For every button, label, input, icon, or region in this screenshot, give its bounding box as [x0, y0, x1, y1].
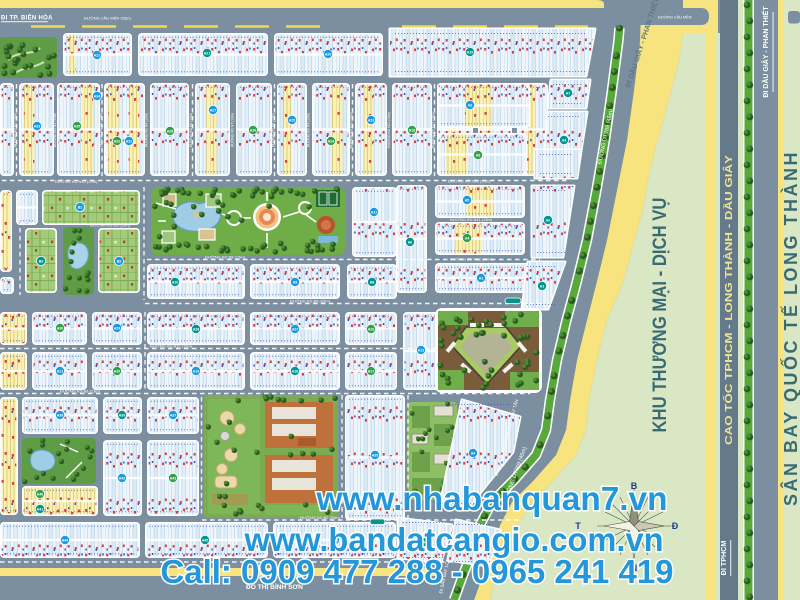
svg-text:A34: A34 [94, 94, 101, 98]
svg-text:A20: A20 [114, 369, 121, 373]
svg-text:B3: B3 [39, 259, 44, 263]
svg-text:A32: A32 [114, 139, 121, 143]
svg-text:A40: A40 [37, 492, 44, 496]
svg-text:A3: A3 [562, 138, 567, 142]
svg-text:ĐƯỜNG KD N10 (13m): ĐƯỜNG KD N10 (13m) [448, 179, 491, 184]
svg-text:ĐƯỜNG KD N8 (13m): ĐƯỜNG KD N8 (13m) [271, 113, 276, 147]
svg-text:A41: A41 [37, 507, 44, 511]
svg-text:A17: A17 [368, 369, 375, 373]
svg-text:A28: A28 [193, 327, 200, 331]
svg-text:ĐƯỜNG KD N12 (13m): ĐƯỜNG KD N12 (13m) [450, 257, 493, 262]
svg-text:A45: A45 [202, 538, 209, 542]
svg-text:ĐƯỜNG KD B8 (13m): ĐƯỜNG KD B8 (13m) [205, 255, 246, 260]
svg-text:A38: A38 [57, 413, 64, 417]
svg-text:A29: A29 [114, 326, 121, 330]
svg-text:A28: A28 [167, 129, 174, 133]
svg-text:ĐƯỜNG CẦU MÊN 32(m): ĐƯỜNG CẦU MÊN 32(m) [84, 16, 132, 21]
svg-text:ĐƯỜNG KD N12 (13m): ĐƯỜNG KD N12 (13m) [55, 179, 98, 184]
svg-text:ĐƯỜNG KD B3 (13m): ĐƯỜNG KD B3 (13m) [90, 223, 131, 228]
svg-text:A19: A19 [467, 50, 474, 54]
svg-text:A9: A9 [293, 280, 298, 284]
svg-text:A19: A19 [193, 369, 200, 373]
svg-text:A35: A35 [372, 453, 379, 457]
svg-text:Call: 0909 477 288 - 0965 241: Call: 0909 477 288 - 0965 241 419 [161, 553, 674, 590]
svg-text:A43: A43 [170, 476, 177, 480]
svg-text:ĐƯỜNG KD N9 (13m): ĐƯỜNG KD N9 (13m) [306, 113, 311, 147]
svg-text:ĐƯỜNG KD N2 (13m): ĐƯỜNG KD N2 (13m) [13, 113, 18, 147]
svg-text:A25: A25 [289, 118, 296, 122]
svg-text:A39: A39 [119, 413, 126, 417]
svg-text:Đ: Đ [672, 521, 679, 531]
svg-text:A27: A27 [292, 327, 299, 331]
svg-text:A26: A26 [368, 327, 375, 331]
svg-text:A18: A18 [292, 369, 299, 373]
svg-text:ĐƯỜNG KD N11 (13m): ĐƯỜNG KD N11 (13m) [450, 217, 493, 222]
svg-text:A1: A1 [479, 276, 484, 280]
svg-text:A8: A8 [370, 280, 375, 284]
svg-text:CAO TỐC TPHCM - LONG THÀNH - D: CAO TỐC TPHCM - LONG THÀNH - DẦU GIÂY [721, 155, 735, 445]
svg-text:ĐI TPHCM: ĐI TPHCM [719, 541, 728, 576]
svg-text:A4: A4 [465, 236, 470, 240]
svg-text:A21: A21 [204, 51, 211, 55]
svg-text:ĐƯỜNG KD B6 (13m): ĐƯỜNG KD B6 (13m) [60, 389, 101, 394]
svg-text:A2: A2 [546, 218, 551, 222]
svg-text:A27: A27 [210, 108, 217, 112]
svg-text:ĐƯỜNG KD B9 (20m): ĐƯỜNG KD B9 (20m) [290, 299, 331, 304]
svg-text:B1: B1 [78, 205, 83, 209]
svg-text:A22: A22 [94, 53, 101, 57]
svg-text:A42: A42 [119, 476, 126, 480]
svg-text:A44: A44 [62, 538, 69, 542]
svg-text:A31: A31 [126, 139, 133, 143]
svg-text:A30: A30 [57, 326, 64, 330]
svg-text:A26: A26 [250, 128, 257, 132]
svg-text:ĐƯỜNG CẦU MÊN: ĐƯỜNG CẦU MÊN [658, 15, 692, 20]
svg-text:ĐƯỜNG KD N7 (13m): ĐƯỜNG KD N7 (13m) [230, 113, 235, 147]
svg-text:ĐƯỜNG KD N5 (13m): ĐƯỜNG KD N5 (13m) [144, 113, 149, 147]
svg-text:A1: A1 [540, 284, 545, 288]
svg-text:B2: B2 [117, 259, 122, 263]
svg-text:ĐƯỜNG KD N11 (13m): ĐƯỜNG KD N11 (13m) [386, 112, 391, 148]
svg-text:A8: A8 [476, 153, 481, 157]
svg-text:A33: A33 [34, 124, 41, 128]
svg-text:A6: A6 [408, 240, 413, 244]
svg-text:A4: A4 [471, 451, 476, 455]
svg-text:A13: A13 [418, 348, 425, 352]
svg-text:ĐI TP. BIÊN HÒA: ĐI TP. BIÊN HÒA [1, 14, 53, 22]
svg-text:A10: A10 [172, 280, 179, 284]
svg-text:A18: A18 [409, 128, 416, 132]
svg-text:ĐƯỜNG KD N6 (13m): ĐƯỜNG KD N6 (13m) [188, 113, 193, 147]
svg-text:KHU THƯƠNG MẠI - DỊCH VỤ: KHU THƯƠNG MẠI - DỊCH VỤ [650, 198, 671, 433]
svg-text:ĐƯỜNG KD B10 (13m): ĐƯỜNG KD B10 (13m) [150, 344, 193, 349]
svg-text:A20: A20 [325, 52, 332, 56]
svg-text:A23: A23 [368, 118, 375, 122]
svg-text:SÂN BAY QUỐC TẾ LONG THÀNH: SÂN BAY QUỐC TẾ LONG THÀNH [780, 150, 800, 506]
svg-text:ĐƯỜNG KD N4 (13m): ĐƯỜNG KD N4 (13m) [98, 113, 103, 147]
svg-text:A37: A37 [170, 413, 177, 417]
svg-text:A11: A11 [371, 210, 377, 214]
svg-text:A35: A35 [74, 124, 81, 128]
svg-text:A5: A5 [465, 198, 470, 202]
svg-text:ĐƯỜNG KD N3 (13m): ĐƯỜNG KD N3 (13m) [52, 113, 57, 147]
svg-text:A21: A21 [57, 369, 64, 373]
svg-text:A7: A7 [566, 91, 571, 95]
svg-text:www.nhabanquan7.vn: www.nhabanquan7.vn [316, 481, 668, 518]
svg-text:ĐƯỜNG KD N12 (13m): ĐƯỜNG KD N12 (13m) [431, 112, 436, 148]
svg-text:A24: A24 [328, 139, 335, 143]
svg-text:ĐƯỜNG KD N10 (13m): ĐƯỜNG KD N10 (13m) [349, 112, 354, 148]
svg-text:A9: A9 [468, 103, 473, 107]
